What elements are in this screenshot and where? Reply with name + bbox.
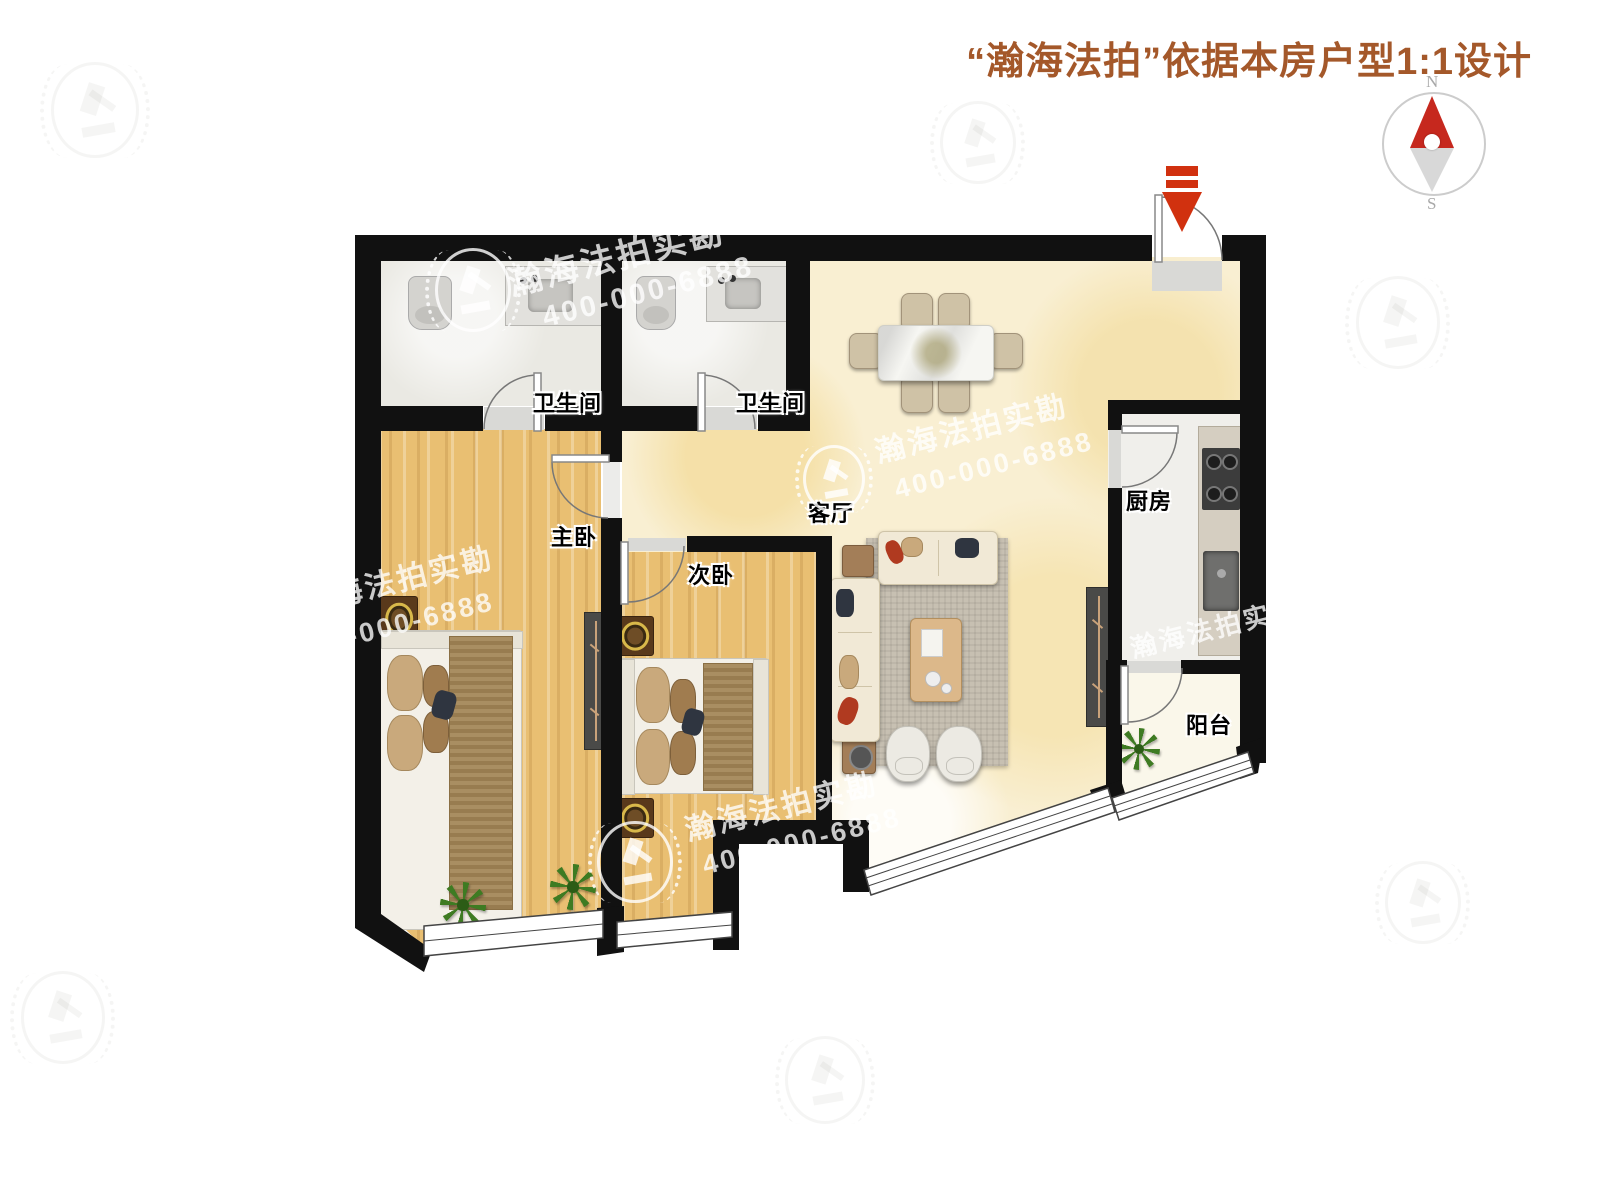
plant bbox=[440, 882, 486, 928]
bed-footboard bbox=[753, 659, 769, 795]
side-table bbox=[842, 545, 874, 577]
room-label-bathroom-2: 卫生间 bbox=[736, 386, 805, 418]
stove bbox=[1202, 448, 1240, 510]
door-threshold bbox=[603, 462, 620, 518]
pillow bbox=[636, 667, 670, 723]
wall bbox=[1108, 400, 1242, 414]
pillow bbox=[670, 731, 696, 775]
bed-blanket bbox=[703, 663, 753, 791]
wall bbox=[1240, 235, 1266, 763]
faint-logo-watermark bbox=[40, 55, 150, 165]
pillow bbox=[387, 715, 423, 771]
compass-hub bbox=[1424, 134, 1440, 150]
sofa bbox=[878, 531, 998, 585]
brand-logo-watermark bbox=[795, 440, 873, 518]
compass-south-label: S bbox=[1427, 194, 1436, 214]
wall bbox=[622, 406, 698, 431]
entrance-arrow-icon bbox=[1162, 166, 1202, 232]
pillow bbox=[387, 655, 423, 711]
page-title: “瀚海法拍”依据本房户型1:1设计 bbox=[966, 30, 1532, 85]
wall bbox=[379, 406, 483, 431]
faint-logo-watermark bbox=[1345, 270, 1450, 375]
door-threshold bbox=[1109, 430, 1121, 488]
wall bbox=[1108, 488, 1122, 664]
coffee-table bbox=[910, 618, 962, 702]
faint-logo-watermark bbox=[930, 95, 1025, 190]
bed-blanket bbox=[449, 636, 513, 910]
entrance-threshold bbox=[1152, 261, 1222, 291]
room-label-kitchen: 厨房 bbox=[1126, 484, 1172, 516]
compass-icon: N S bbox=[1372, 78, 1492, 210]
room-label-master-bedroom: 主卧 bbox=[551, 520, 597, 552]
armchair bbox=[936, 726, 982, 782]
plant bbox=[1118, 728, 1160, 770]
dining-table bbox=[878, 325, 994, 381]
dining-chair bbox=[989, 333, 1023, 369]
armchair bbox=[886, 726, 930, 782]
wall bbox=[687, 536, 830, 552]
faint-logo-watermark bbox=[1375, 855, 1470, 950]
door-threshold bbox=[628, 538, 686, 551]
floor-plan-page: { "header": { "title": "“瀚海法拍”依据本房户型1:1设… bbox=[0, 0, 1600, 1200]
faint-logo-watermark bbox=[10, 965, 115, 1070]
pillow bbox=[636, 729, 670, 785]
room-label-balcony: 阳台 bbox=[1186, 708, 1232, 740]
second-bed bbox=[618, 658, 768, 794]
room-label-second-bedroom: 次卧 bbox=[688, 558, 734, 590]
wall bbox=[1108, 400, 1122, 430]
sofa-chaise bbox=[830, 578, 880, 742]
wall bbox=[601, 429, 622, 462]
wall bbox=[1106, 660, 1122, 810]
brand-logo-watermark bbox=[588, 815, 682, 909]
wall bbox=[1181, 660, 1242, 674]
room-label-bathroom-1: 卫生间 bbox=[533, 386, 602, 418]
faint-logo-watermark bbox=[775, 1030, 875, 1130]
